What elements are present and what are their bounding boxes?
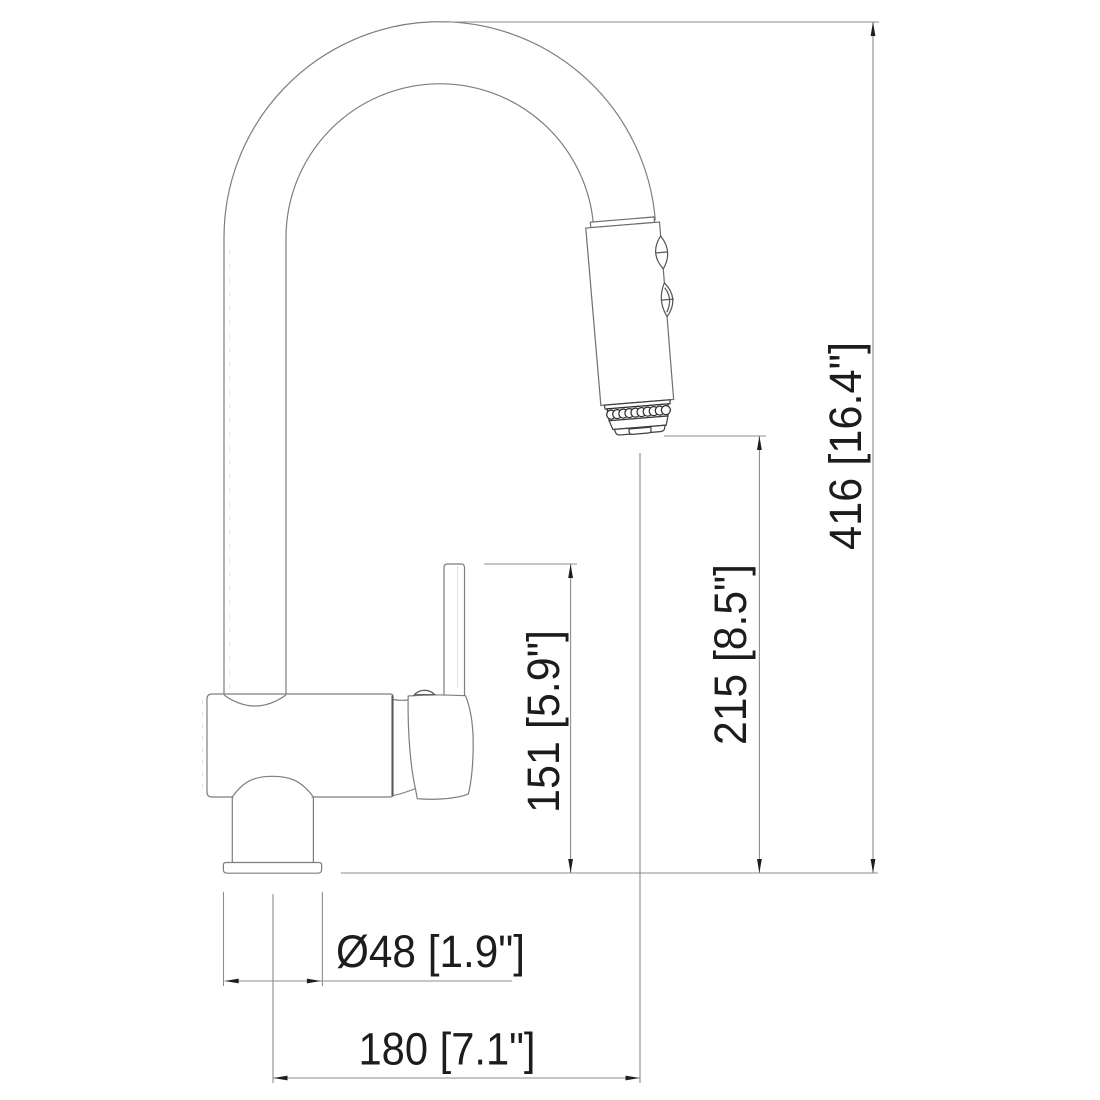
- svg-text:416 [16.4"]: 416 [16.4"]: [820, 342, 871, 550]
- svg-text:151 [5.9"]: 151 [5.9"]: [518, 630, 569, 813]
- svg-text:Ø48 [1.9"]: Ø48 [1.9"]: [336, 926, 525, 977]
- svg-text:215 [8.5"]: 215 [8.5"]: [705, 564, 756, 745]
- svg-text:180 [7.1"]: 180 [7.1"]: [359, 1024, 536, 1075]
